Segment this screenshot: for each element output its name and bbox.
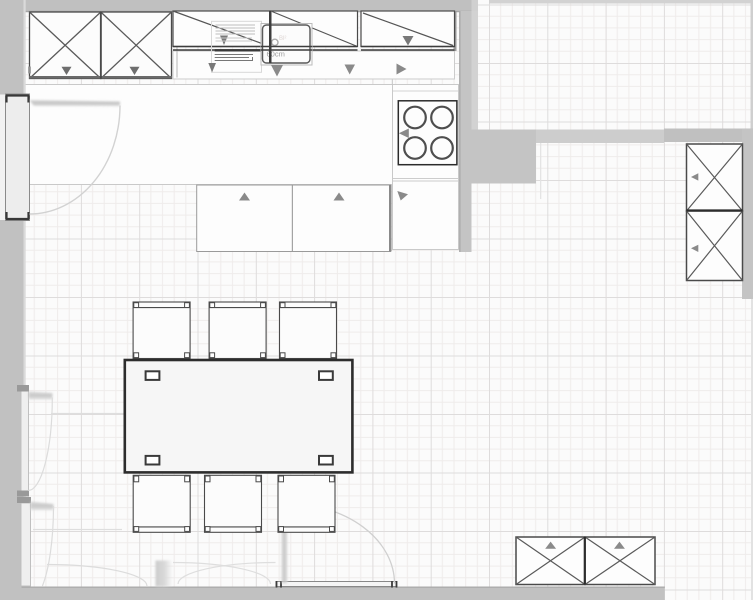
svg-text:Bl²: Bl² [279, 36, 286, 42]
